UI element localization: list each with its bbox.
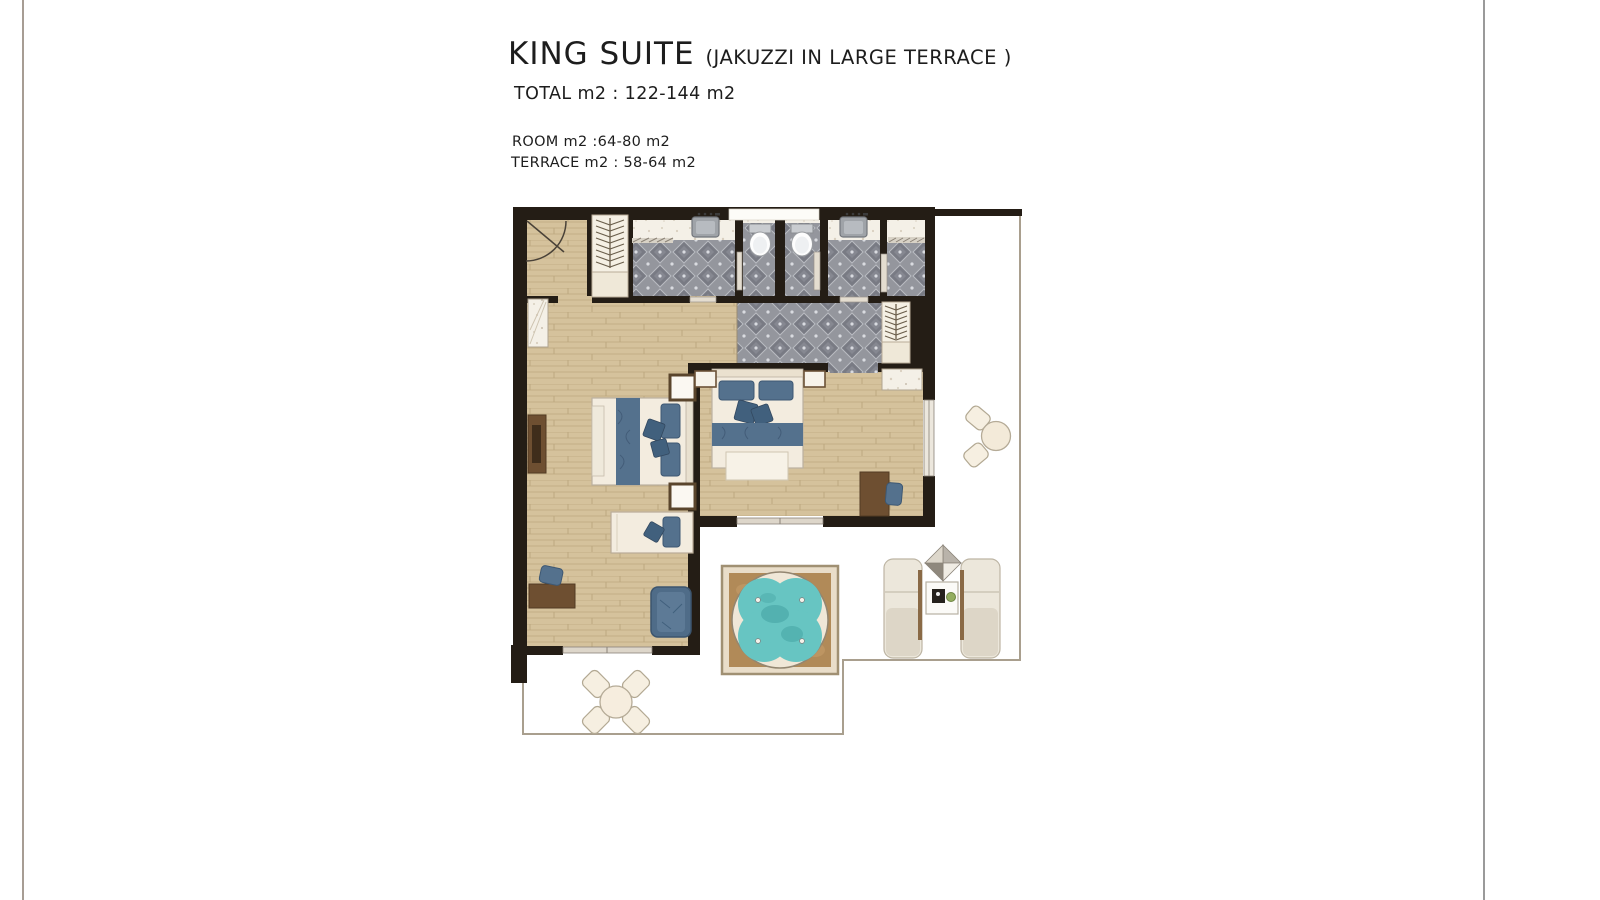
wardrobe-hangers xyxy=(882,302,910,363)
room-area-text: ROOM m2 :64-80 m2 xyxy=(512,134,670,150)
shower xyxy=(888,237,925,243)
page-right-rule xyxy=(1483,0,1485,900)
nightstand xyxy=(670,484,695,509)
king-bed xyxy=(712,369,803,480)
bistro-set xyxy=(962,404,1011,469)
bedroom-niche xyxy=(882,369,922,390)
jacuzzi-water xyxy=(738,578,822,662)
pillow xyxy=(759,381,793,400)
bathroom-left-door xyxy=(690,297,716,302)
page-title: KING SUITE (JAKUZZI IN LARGE TERRACE ) xyxy=(508,36,1012,72)
wc-toilet xyxy=(791,224,813,256)
nightstand xyxy=(695,371,716,387)
wc1-door xyxy=(737,252,742,290)
page-left-rule xyxy=(22,0,24,900)
top-wall-niche xyxy=(729,209,819,220)
shower-room-floor xyxy=(887,242,925,303)
bed-runner xyxy=(712,423,803,446)
nightstand xyxy=(804,371,825,387)
shower xyxy=(632,238,673,243)
plant xyxy=(947,593,956,602)
bathroom-left-floor xyxy=(632,240,735,303)
jacuzzi xyxy=(722,566,838,674)
parasol xyxy=(925,545,961,581)
terrace-area-text: TERRACE m2 : 58-64 m2 xyxy=(511,155,696,171)
armchair xyxy=(651,587,691,637)
daybed xyxy=(611,512,693,553)
bathroom-right-floor xyxy=(828,240,880,303)
bistro-table xyxy=(982,422,1011,451)
sun-lounger xyxy=(960,559,1000,658)
pillow xyxy=(719,381,754,400)
single-bed xyxy=(592,398,693,485)
title-main: KING SUITE xyxy=(508,36,695,72)
shower-room-door xyxy=(881,254,887,292)
wc2-door xyxy=(814,252,820,290)
side-table xyxy=(926,582,958,614)
foot-throw xyxy=(726,452,788,480)
tray xyxy=(932,589,945,603)
nightstand xyxy=(670,375,695,400)
closet-hangers xyxy=(592,215,628,297)
title-note: (JAKUZZI IN LARGE TERRACE ) xyxy=(705,46,1011,69)
floor-plan xyxy=(500,195,1040,755)
desk-chair xyxy=(885,482,903,505)
pillow xyxy=(661,404,680,438)
total-area-text: TOTAL m2 : 122-144 m2 xyxy=(514,84,736,104)
dining-set xyxy=(580,668,651,735)
dining-table xyxy=(600,686,632,718)
bathroom-right-door xyxy=(840,297,868,302)
wc-toilet xyxy=(749,224,771,256)
page: { "header": { "title": "KING SUITE", "ti… xyxy=(0,0,1600,900)
sun-lounger xyxy=(884,559,922,658)
